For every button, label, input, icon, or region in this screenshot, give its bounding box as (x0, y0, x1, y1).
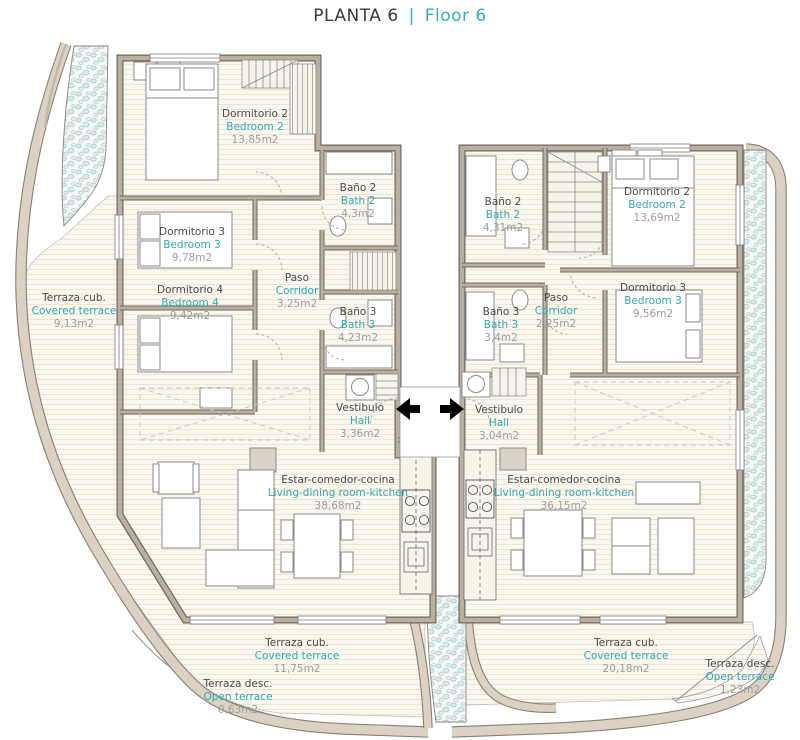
room-name-es: Terraza cub. (32, 292, 117, 305)
room-name-en: Open terrace (705, 671, 774, 684)
room-area: 11,75m2 (255, 663, 340, 676)
room-label-left-bedroom2: Dormitorio 2 Bedroom 2 13,85m2 (222, 108, 288, 147)
entry-landing (396, 387, 464, 457)
room-name-es: Dormitorio 3 (620, 282, 686, 295)
room-label-left-bedroom3: Dormitorio 3 Bedroom 3 9,78m2 (159, 226, 225, 265)
room-area: 3,4m2 (483, 332, 520, 345)
room-name-en: Bath 3 (338, 319, 378, 332)
room-name-es: Baño 2 (483, 196, 523, 209)
room-name-es: Terraza desc. (203, 678, 272, 691)
room-label-left-bath3: Baño 3 Bath 3 4,23m2 (338, 306, 378, 345)
room-label-right-bedroom2: Dormitorio 2 Bedroom 2 13,69m2 (624, 186, 690, 225)
room-label-right-terrace-bottom: Terraza cub. Covered terrace 20,18m2 (584, 637, 669, 676)
room-name-en: Bedroom 2 (222, 121, 288, 134)
room-label-right-corridor: Paso Corridor 2,25m2 (535, 292, 578, 331)
room-label-left-hall: Vestibulo Hall 3,36m2 (336, 402, 384, 441)
room-area: 3,25m2 (276, 298, 319, 311)
room-area: 1,23m2 (705, 684, 774, 697)
room-name-en: Covered terrace (255, 650, 340, 663)
page-title: PLANTA 6 | Floor 6 (0, 6, 800, 26)
room-area: 38,68m2 (268, 500, 408, 513)
kitchen-counter (400, 446, 432, 594)
room-area: 0,63m2 (203, 704, 272, 717)
room-area: 9,42m2 (157, 310, 223, 323)
room-label-left-terrace-side: Terraza cub. Covered terrace 9,13m2 (32, 292, 117, 331)
room-area: 9,56m2 (620, 308, 686, 321)
room-area: 4,31m2 (483, 222, 523, 235)
room-label-left-terrace-bottom: Terraza cub. Covered terrace 11,75m2 (255, 637, 340, 676)
room-name-es: Terraza cub. (584, 637, 669, 650)
room-label-right-bedroom3: Dormitorio 3 Bedroom 3 9,56m2 (620, 282, 686, 321)
room-label-left-bedroom4: Dormitorio 4 Bedroom 4 9,42m2 (157, 284, 223, 323)
room-area: 3,36m2 (336, 428, 384, 441)
title-secondary: Floor 6 (425, 6, 487, 26)
floorplan-canvas (0, 0, 800, 740)
room-name-es: Vestibulo (475, 404, 523, 417)
kitchen-counter (464, 450, 496, 600)
room-area: 13,69m2 (624, 212, 690, 225)
room-name-es: Estar-comedor-cocina (494, 474, 634, 487)
room-name-es: Dormitorio 3 (159, 226, 225, 239)
room-name-en: Corridor (535, 305, 578, 318)
room-name-en: Bath 3 (483, 319, 520, 332)
room-area: 13,85m2 (222, 134, 288, 147)
room-area: 4,3m2 (340, 208, 377, 221)
room-name-es: Estar-comedor-cocina (268, 474, 408, 487)
room-name-en: Bedroom 2 (624, 199, 690, 212)
room-name-es: Terraza desc. (705, 658, 774, 671)
room-name-en: Hall (475, 417, 523, 430)
room-area: 36,15m2 (494, 500, 634, 513)
floorplan-page: PLANTA 6 | Floor 6 Dormitorio 2 Bedroom … (0, 0, 800, 740)
room-label-right-terrace-open: Terraza desc. Open terrace 1,23m2 (705, 658, 774, 697)
room-name-en: Living-dining room-kitchen (494, 487, 634, 500)
room-name-en: Covered terrace (32, 305, 117, 318)
room-area: 4,23m2 (338, 332, 378, 345)
room-name-es: Paso (535, 292, 578, 305)
room-area: 20,18m2 (584, 663, 669, 676)
room-name-es: Dormitorio 2 (624, 186, 690, 199)
room-name-en: Open terrace (203, 691, 272, 704)
room-name-en: Hall (336, 415, 384, 428)
room-label-left-terrace-open: Terraza desc. Open terrace 0,63m2 (203, 678, 272, 717)
room-label-right-bath2: Baño 2 Bath 2 4,31m2 (483, 196, 523, 235)
room-label-right-hall: Vestibulo Hall 3,04m2 (475, 404, 523, 443)
room-label-left-bath2: Baño 2 Bath 2 4,3m2 (340, 182, 377, 221)
room-label-left-corridor: Paso Corridor 3,25m2 (276, 272, 319, 311)
room-name-es: Vestibulo (336, 402, 384, 415)
room-label-right-bath3: Baño 3 Bath 3 3,4m2 (483, 306, 520, 345)
room-name-en: Living-dining room-kitchen (268, 487, 408, 500)
room-area: 9,78m2 (159, 252, 225, 265)
room-label-right-living: Estar-comedor-cocina Living-dining room-… (494, 474, 634, 513)
room-name-en: Bedroom 4 (157, 297, 223, 310)
room-label-left-living: Estar-comedor-cocina Living-dining room-… (268, 474, 408, 513)
room-name-en: Bedroom 3 (159, 239, 225, 252)
title-primary: PLANTA 6 (313, 6, 398, 26)
room-name-en: Covered terrace (584, 650, 669, 663)
room-area: 2,25m2 (535, 318, 578, 331)
room-name-en: Corridor (276, 285, 319, 298)
room-area: 3,04m2 (475, 430, 523, 443)
room-name-es: Dormitorio 4 (157, 284, 223, 297)
room-name-en: Bath 2 (483, 209, 523, 222)
room-name-es: Baño 3 (338, 306, 378, 319)
room-name-en: Bath 2 (340, 195, 377, 208)
room-name-es: Terraza cub. (255, 637, 340, 650)
room-name-es: Paso (276, 272, 319, 285)
room-name-es: Baño 2 (340, 182, 377, 195)
room-area: 9,13m2 (32, 318, 117, 331)
room-name-en: Bedroom 3 (620, 295, 686, 308)
title-separator: | (409, 6, 415, 26)
room-name-es: Dormitorio 2 (222, 108, 288, 121)
room-name-es: Baño 3 (483, 306, 520, 319)
